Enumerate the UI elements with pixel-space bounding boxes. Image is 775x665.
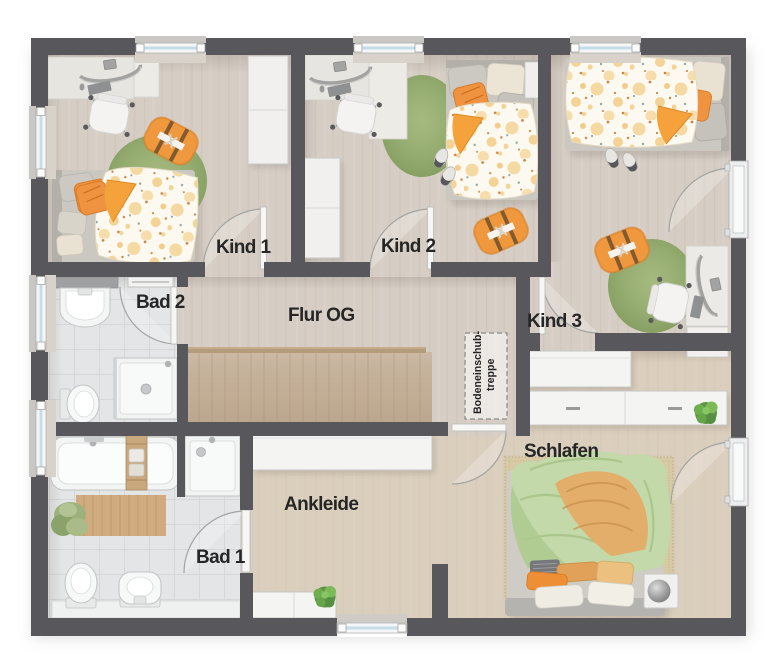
svg-text:Kind 3: Kind 3	[527, 311, 581, 332]
svg-text:Kind 2: Kind 2	[381, 236, 435, 257]
svg-text:Bad 1: Bad 1	[196, 547, 246, 568]
svg-text:Schlafen: Schlafen	[524, 441, 598, 462]
svg-text:treppe: treppe	[485, 359, 497, 391]
svg-text:Kind 1: Kind 1	[216, 237, 271, 258]
svg-text:Bodeneinschub-: Bodeneinschub-	[472, 331, 484, 414]
svg-text:Flur OG: Flur OG	[288, 305, 355, 326]
svg-text:Ankleide: Ankleide	[284, 494, 358, 515]
svg-text:Bad 2: Bad 2	[136, 292, 185, 313]
